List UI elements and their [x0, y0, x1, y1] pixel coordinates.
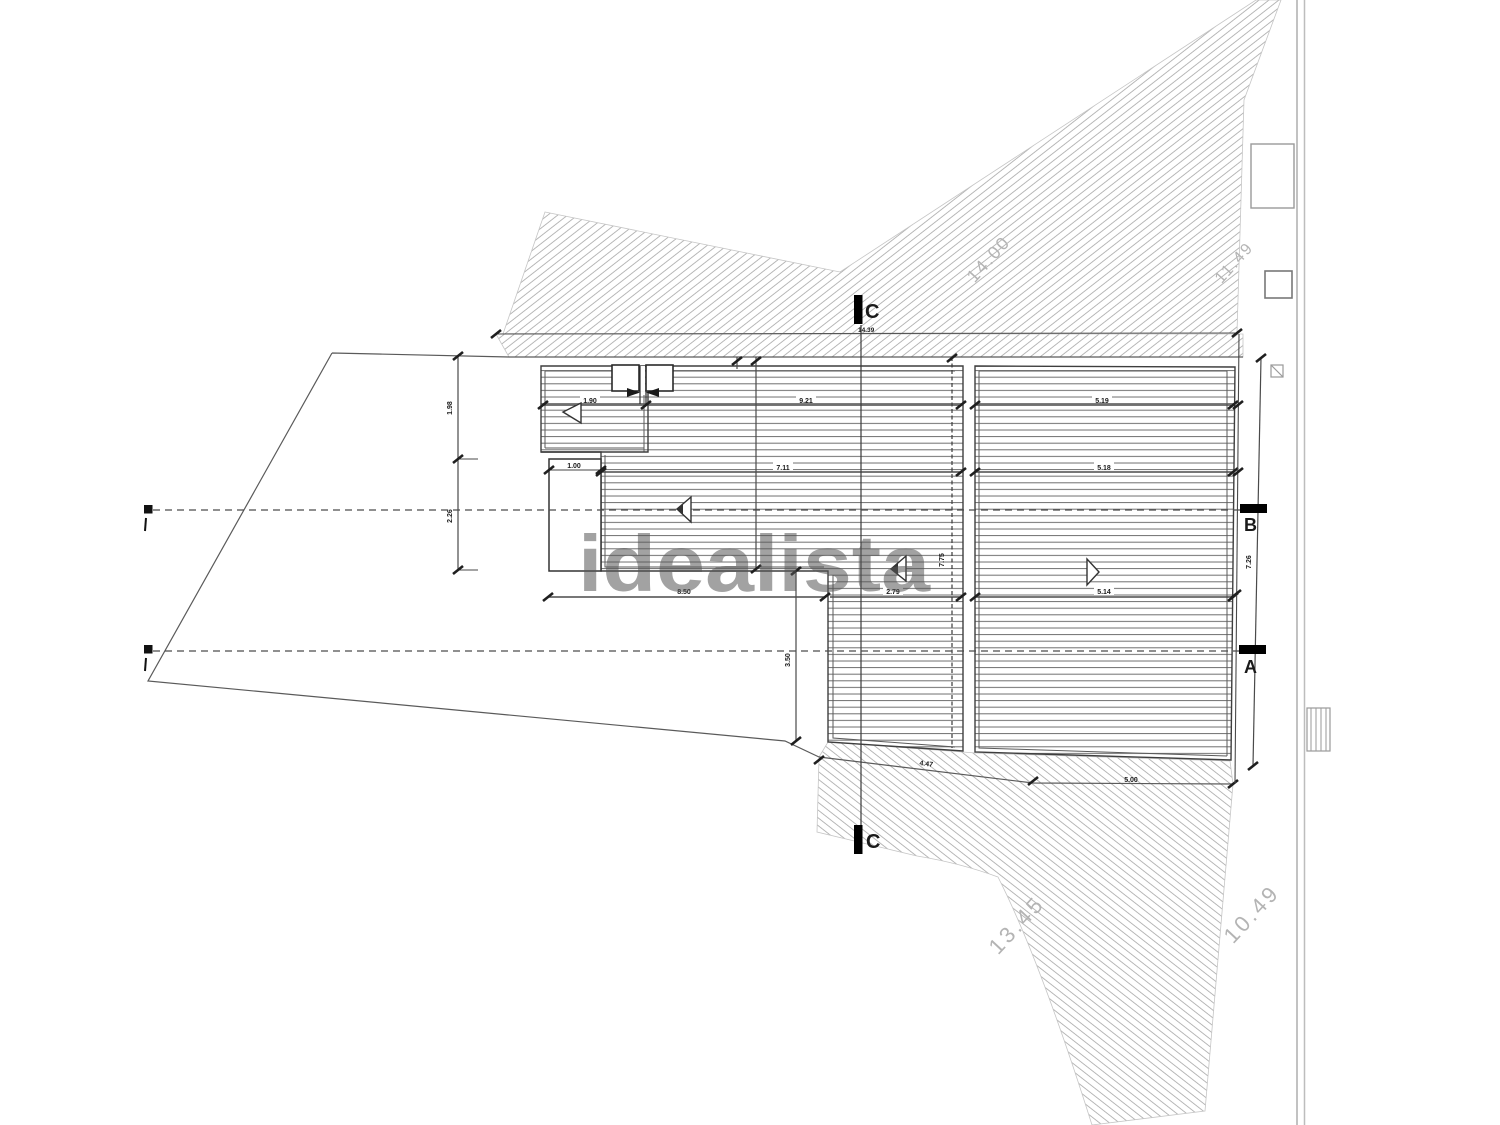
svg-text:C: C: [866, 831, 880, 853]
svg-text:7.11: 7.11: [776, 465, 789, 472]
svg-text:7.26: 7.26: [1246, 555, 1253, 569]
svg-text:1.90: 1.90: [583, 398, 597, 405]
svg-text:3.50: 3.50: [785, 653, 792, 667]
svg-text:14.39: 14.39: [858, 327, 875, 334]
svg-text:idealista: idealista: [578, 519, 931, 608]
svg-text:5.18: 5.18: [1097, 465, 1111, 472]
svg-text:A: A: [1244, 657, 1257, 677]
svg-text:5.19: 5.19: [1095, 398, 1109, 405]
svg-text:2.26: 2.26: [447, 509, 454, 523]
svg-text:7.75: 7.75: [939, 553, 946, 567]
svg-text:C: C: [865, 301, 879, 323]
svg-text:B: B: [1244, 515, 1257, 535]
svg-text:9.21: 9.21: [799, 398, 813, 405]
svg-text:1.98: 1.98: [447, 401, 454, 415]
svg-text:5.14: 5.14: [1097, 589, 1111, 596]
svg-text:5.00: 5.00: [1124, 777, 1138, 784]
svg-text:1.00: 1.00: [567, 463, 581, 470]
